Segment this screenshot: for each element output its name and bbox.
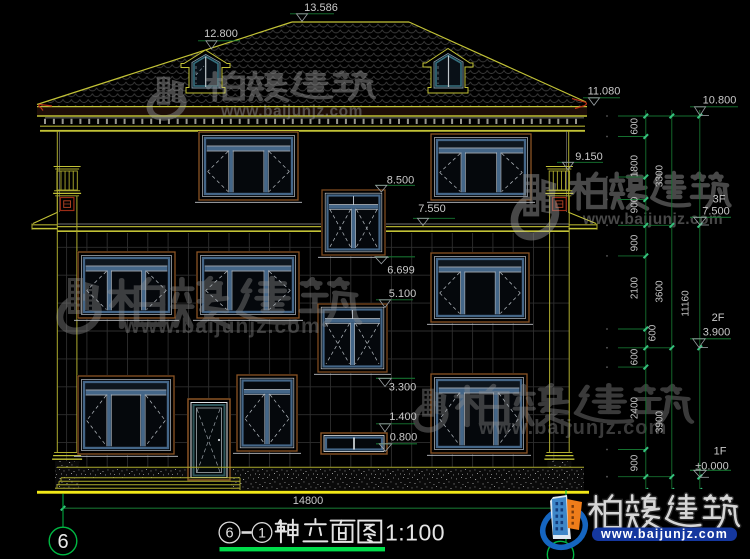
svg-text:14800: 14800 bbox=[293, 495, 324, 507]
svg-text:www.baijunjz.com: www.baijunjz.com bbox=[478, 417, 668, 439]
svg-text:13.586: 13.586 bbox=[304, 2, 338, 14]
svg-text:1.400: 1.400 bbox=[389, 411, 417, 423]
svg-text:600: 600 bbox=[630, 348, 641, 365]
svg-text:600: 600 bbox=[648, 324, 659, 341]
svg-text:0.800: 0.800 bbox=[390, 432, 418, 444]
svg-text:600: 600 bbox=[630, 118, 641, 135]
svg-text:7.550: 7.550 bbox=[418, 203, 446, 215]
svg-text:www.baijunjz.com: www.baijunjz.com bbox=[122, 315, 320, 338]
svg-text:2F: 2F bbox=[712, 312, 725, 324]
svg-text:2400: 2400 bbox=[630, 396, 641, 419]
svg-text:9.150: 9.150 bbox=[575, 151, 603, 163]
svg-text:900: 900 bbox=[630, 234, 641, 251]
svg-text:11160: 11160 bbox=[681, 290, 692, 317]
svg-text:5.100: 5.100 bbox=[389, 288, 417, 300]
svg-text:12.800: 12.800 bbox=[204, 28, 238, 40]
svg-text:3F: 3F bbox=[713, 194, 726, 206]
svg-text:3.900: 3.900 bbox=[703, 327, 731, 339]
svg-text:8.500: 8.500 bbox=[387, 175, 415, 187]
svg-text:3600: 3600 bbox=[655, 280, 666, 303]
svg-text:3900: 3900 bbox=[655, 410, 666, 433]
svg-text:2100: 2100 bbox=[630, 276, 641, 299]
svg-text:900: 900 bbox=[630, 454, 641, 471]
svg-text:1F: 1F bbox=[714, 446, 727, 458]
svg-text:www.baijunjz.com: www.baijunjz.com bbox=[600, 527, 728, 541]
svg-text:1: 1 bbox=[258, 525, 266, 541]
svg-text:11.080: 11.080 bbox=[588, 86, 621, 98]
svg-text:6.699: 6.699 bbox=[387, 265, 415, 277]
svg-text:6: 6 bbox=[57, 531, 68, 553]
svg-text:1800: 1800 bbox=[630, 154, 641, 177]
svg-text:3.300: 3.300 bbox=[389, 382, 417, 394]
svg-text:3300: 3300 bbox=[655, 164, 666, 187]
svg-text:7.500: 7.500 bbox=[702, 206, 730, 218]
svg-text:1:100: 1:100 bbox=[385, 520, 445, 546]
svg-text:6: 6 bbox=[225, 526, 233, 542]
svg-text:www.baijunjz.com: www.baijunjz.com bbox=[220, 103, 363, 120]
svg-text:900: 900 bbox=[630, 196, 641, 213]
svg-text:10.800: 10.800 bbox=[703, 95, 737, 107]
